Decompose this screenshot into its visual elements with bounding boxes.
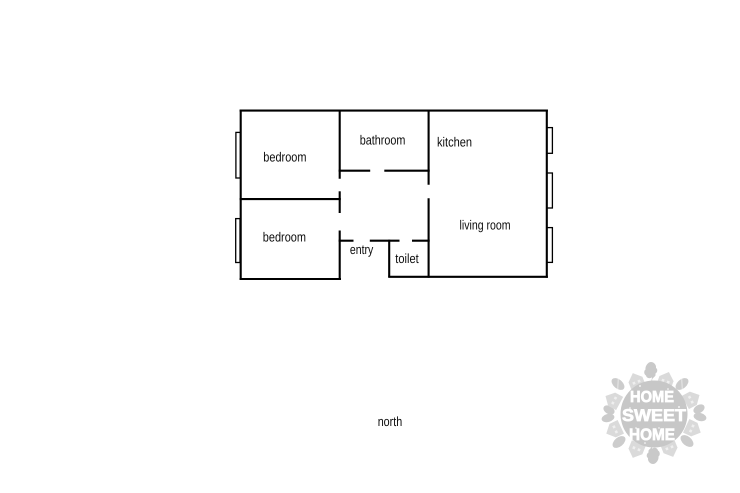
svg-text:kitchen: kitchen: [437, 135, 472, 150]
svg-text:HOME: HOME: [630, 389, 674, 406]
svg-text:bedroom: bedroom: [263, 149, 306, 164]
svg-text:bedroom: bedroom: [263, 230, 306, 245]
svg-text:north: north: [378, 414, 403, 429]
svg-text:bathroom: bathroom: [360, 133, 406, 148]
svg-text:toilet: toilet: [395, 251, 419, 266]
svg-text:SWEET: SWEET: [622, 406, 687, 425]
svg-text:living room: living room: [460, 218, 511, 233]
svg-text:entry: entry: [350, 242, 374, 257]
